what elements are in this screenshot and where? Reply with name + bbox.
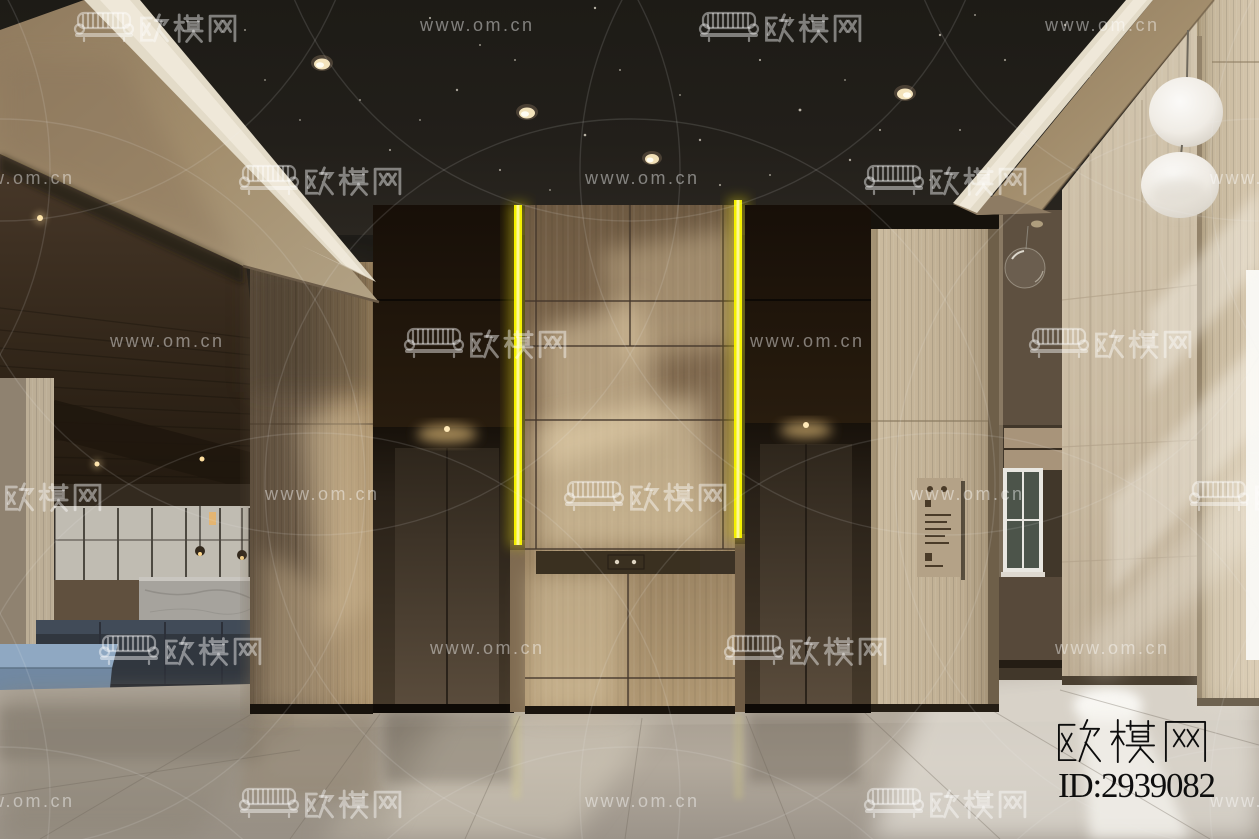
svg-text:ID:2939082: ID:2939082 — [1058, 766, 1216, 805]
